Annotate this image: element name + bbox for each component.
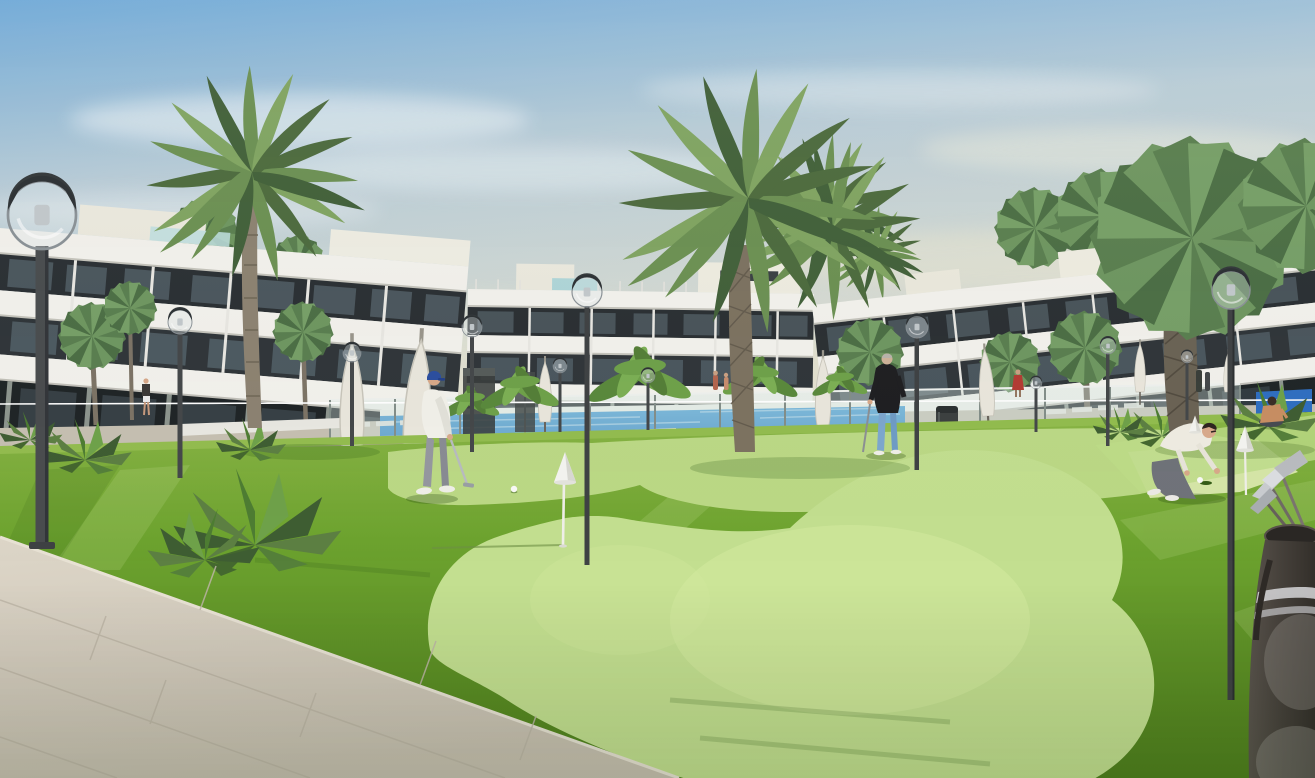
scene-canvas [0,0,1315,778]
color-grade-vignette [0,0,1315,778]
render-photo: Exterior render: modern white apartment … [0,0,1315,778]
